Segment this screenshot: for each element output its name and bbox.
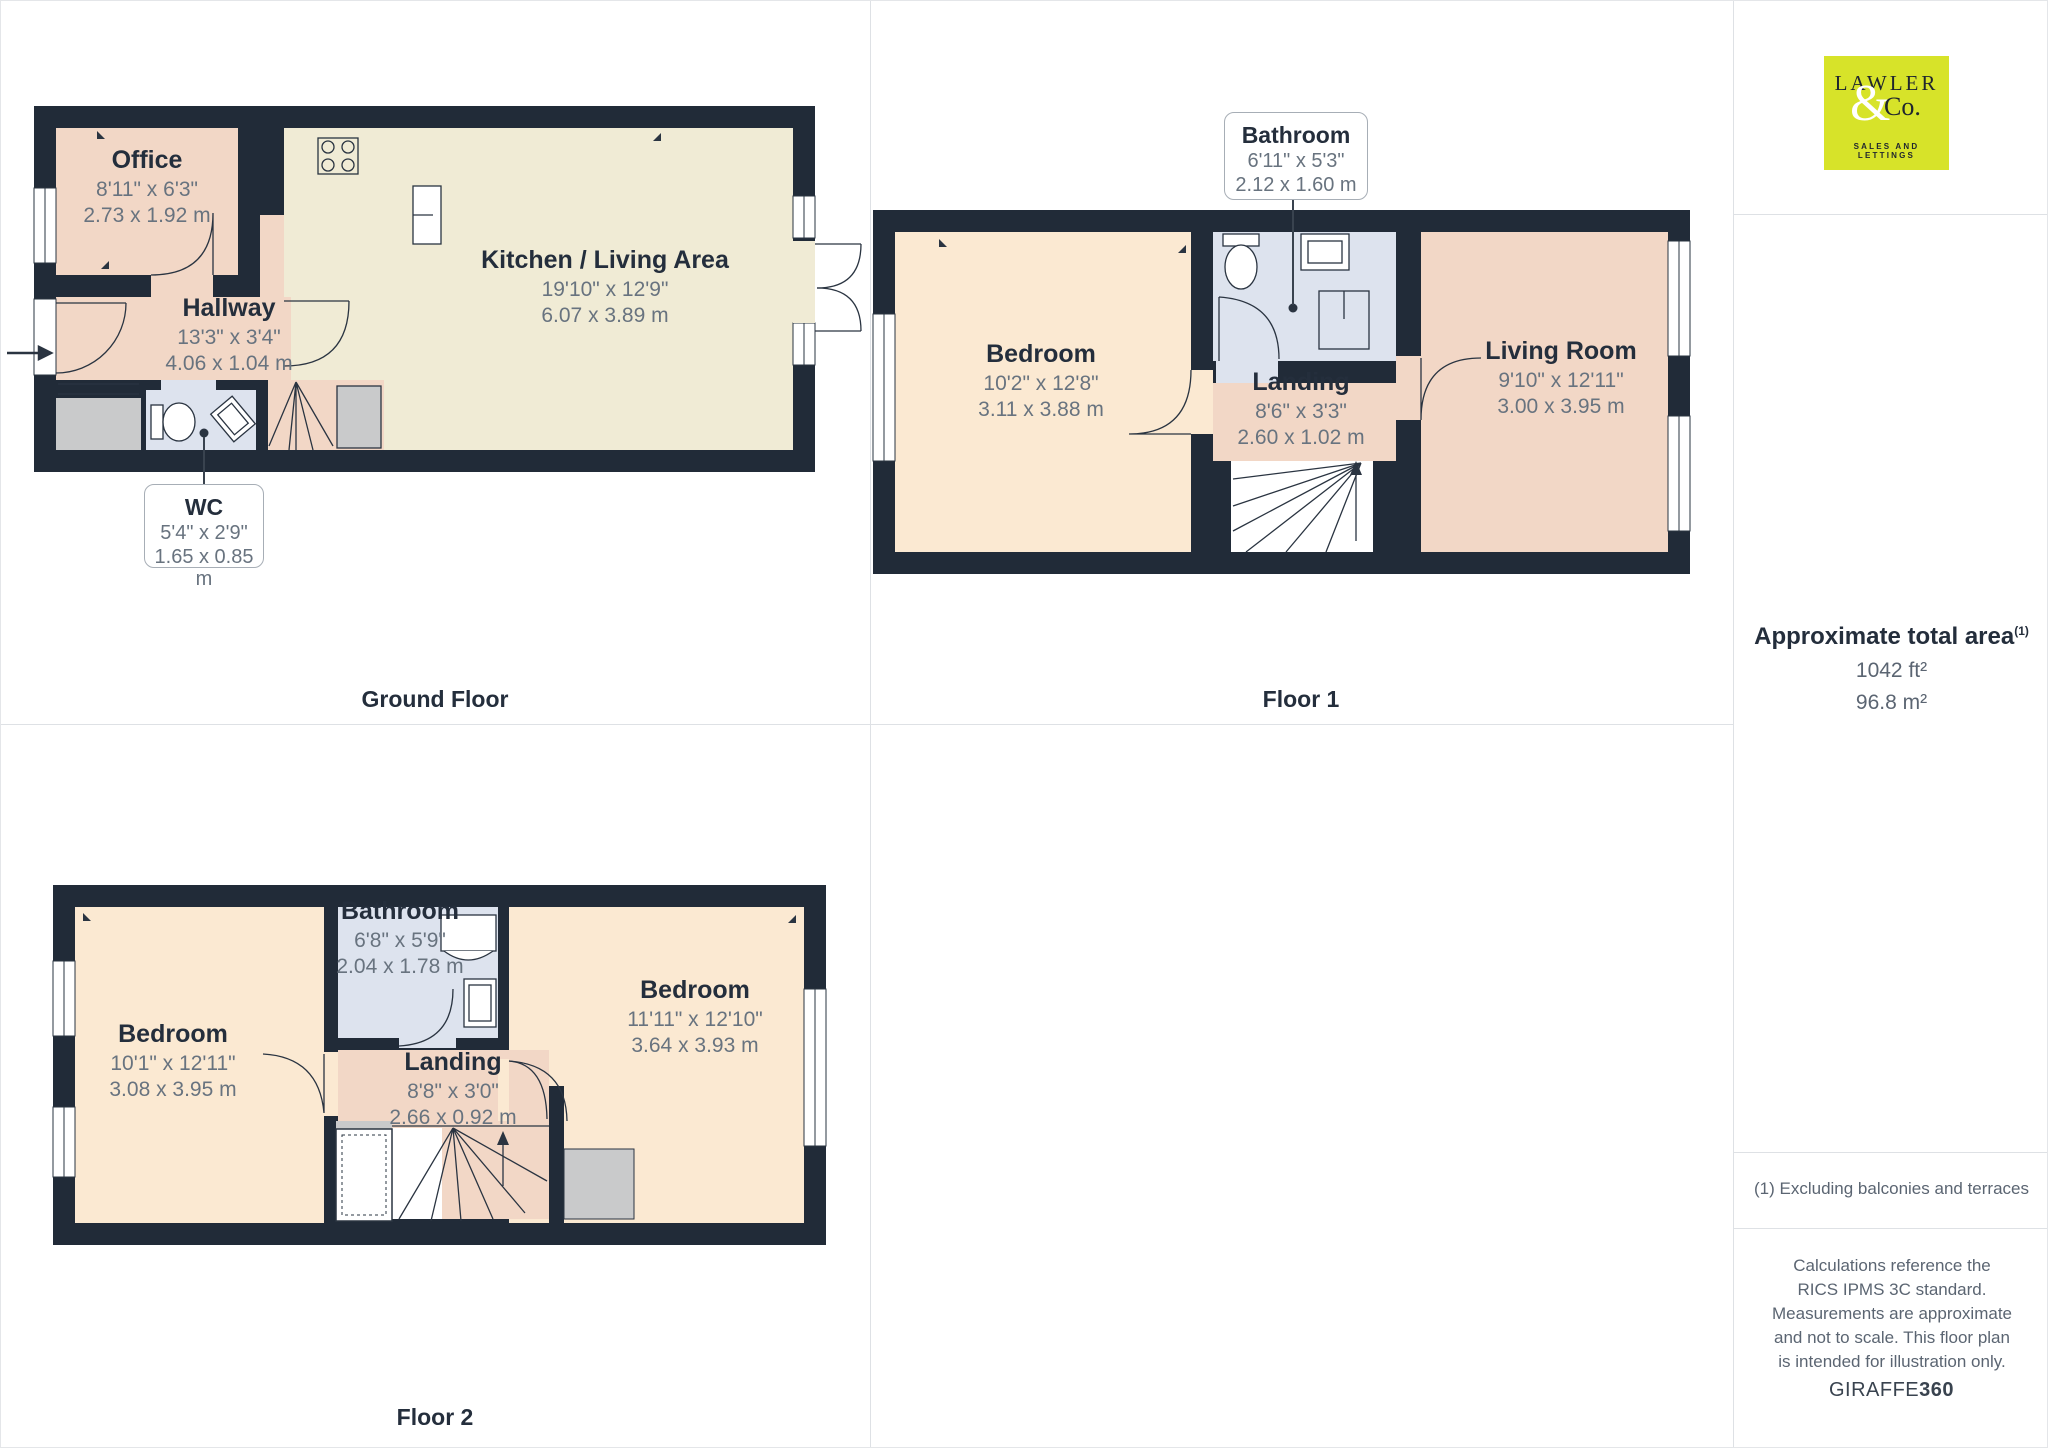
stairs-icon [268, 380, 384, 450]
bathroom1-callout: Bathroom 6'11" x 5'3" 2.12 x 1.60 m [1224, 112, 1368, 200]
area-footnote: (1) Excluding balconies and terraces [1734, 1179, 2048, 1199]
floorplan-sheet: Office 8'11" x 6'3" 2.73 x 1.92 m Kitche… [0, 0, 2048, 1448]
entry-arrow-icon [7, 347, 51, 359]
landing2-label: Landing 8'8" x 3'0" 2.66 x 0.92 m [389, 1047, 516, 1129]
oven-icon [413, 186, 441, 244]
ground-floor-label: Ground Floor [362, 686, 509, 713]
porch-store [56, 398, 141, 450]
front-door [34, 299, 56, 375]
toilet-icon [151, 403, 195, 441]
store-area [564, 1149, 634, 1219]
sink-icon [1301, 234, 1349, 270]
bedroom1-label: Bedroom 10'2" x 12'8" 3.11 x 3.88 m [978, 339, 1104, 421]
wc-callout-connector [203, 437, 205, 484]
closet-icon [336, 1121, 392, 1221]
sink-icon [464, 979, 496, 1027]
disclaimer-text: Calculations reference the RICS IPMS 3C … [1772, 1254, 2012, 1374]
wc-callout: WC 5'4" x 2'9" 1.65 x 0.85 m [144, 484, 264, 568]
floorplan-graphics [1, 1, 2048, 1448]
window [873, 314, 895, 461]
living-room-label: Living Room 9'10" x 12'11" 3.00 x 3.95 m [1485, 336, 1636, 418]
area-footnote-marker: (1) [2014, 624, 2029, 638]
french-doors-arc [815, 244, 861, 331]
area-value-m: 96.8 m² [1734, 691, 2048, 715]
office-label: Office 8'11" x 6'3" 2.73 x 1.92 m [83, 145, 210, 227]
hob-icon [318, 138, 358, 174]
giraffe360-brand: GIRAFFE360 [1734, 1379, 2048, 1402]
landing1-label: Landing 8'6" x 3'3" 2.60 x 1.02 m [1237, 367, 1364, 449]
toilet-icon [1223, 234, 1259, 289]
bedroom3-label: Bedroom 11'11" x 12'10" 3.64 x 3.93 m [627, 975, 762, 1057]
bathroom2-label: Bathroom 6'8" x 5'9" 2.04 x 1.78 m [336, 896, 463, 978]
lawler-co-logo: LAWLER & Co. SALES AND LETTINGS [1824, 56, 1949, 170]
floor1-label: Floor 1 [1263, 686, 1340, 713]
logo-co: Co. [1884, 92, 1921, 122]
area-value-ft: 1042 ft² [1734, 659, 2048, 683]
hallway-label: Hallway 13'3" x 3'4" 4.06 x 1.04 m [165, 293, 292, 375]
floor2-label: Floor 2 [397, 1404, 474, 1431]
area-heading: Approximate total area(1) [1734, 623, 2048, 651]
window [34, 188, 56, 263]
kitchen-living-label: Kitchen / Living Area 19'10" x 12'9" 6.0… [481, 245, 729, 327]
bathroom-callout-connector [1292, 200, 1294, 305]
bedroom2-label: Bedroom 10'1" x 12'11" 3.08 x 3.95 m [109, 1019, 236, 1101]
logo-tagline: SALES AND LETTINGS [1824, 142, 1949, 160]
